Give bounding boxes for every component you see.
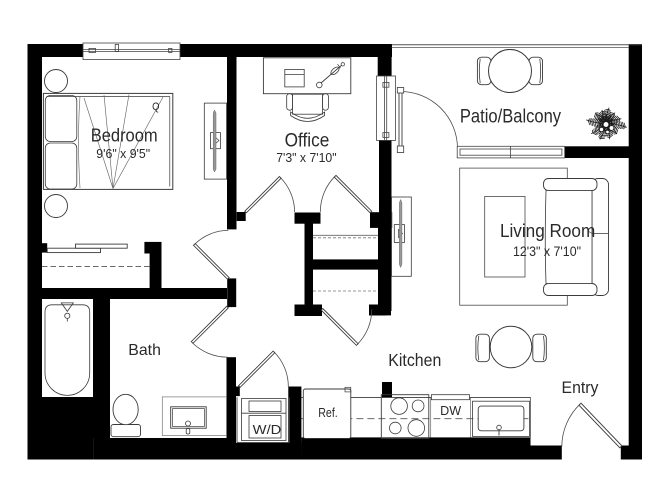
svg-text:7'3" x 7'10": 7'3" x 7'10" xyxy=(276,151,336,165)
svg-text:Q: Q xyxy=(152,101,160,113)
svg-text:Office: Office xyxy=(285,130,330,152)
svg-text:Bath: Bath xyxy=(128,342,161,359)
svg-text:9'6" x 9'5": 9'6" x 9'5" xyxy=(96,147,150,161)
svg-text:Ref.: Ref. xyxy=(318,405,338,420)
svg-text:W/D: W/D xyxy=(253,423,282,437)
svg-text:Living Room: Living Room xyxy=(500,221,595,241)
svg-text:Bedroom: Bedroom xyxy=(91,125,158,146)
svg-text:Kitchen: Kitchen xyxy=(388,350,441,370)
svg-text:Patio/Balcony: Patio/Balcony xyxy=(460,107,562,128)
svg-text:DW: DW xyxy=(440,403,462,418)
svg-text:12'3" x 7'10": 12'3" x 7'10" xyxy=(513,244,581,259)
svg-text:Entry: Entry xyxy=(562,379,600,397)
